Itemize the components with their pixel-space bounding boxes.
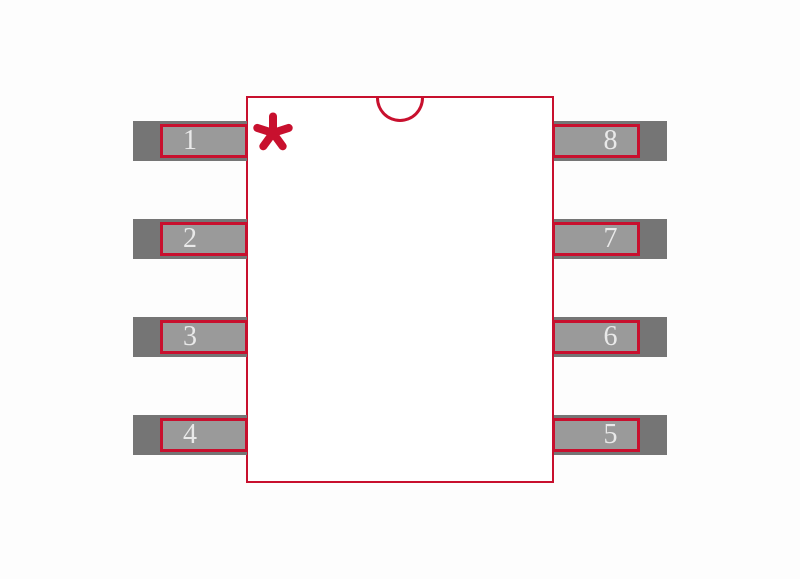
orientation-notch-icon [376, 98, 424, 122]
pin-3-number: 3 [133, 317, 247, 357]
pin-2-number: 2 [133, 219, 247, 259]
pin-1-number: 1 [133, 121, 247, 161]
component-body [246, 96, 554, 483]
pin-6-number: 6 [554, 317, 667, 357]
footprint-canvas: 1 2 3 4 5 6 7 8 [0, 0, 800, 579]
pin-4-number: 4 [133, 415, 247, 455]
pin-8-number: 8 [554, 121, 667, 161]
pin1-marker-asterisk-icon [252, 112, 294, 154]
pin-7-number: 7 [554, 219, 667, 259]
pin-5-number: 5 [554, 415, 667, 455]
